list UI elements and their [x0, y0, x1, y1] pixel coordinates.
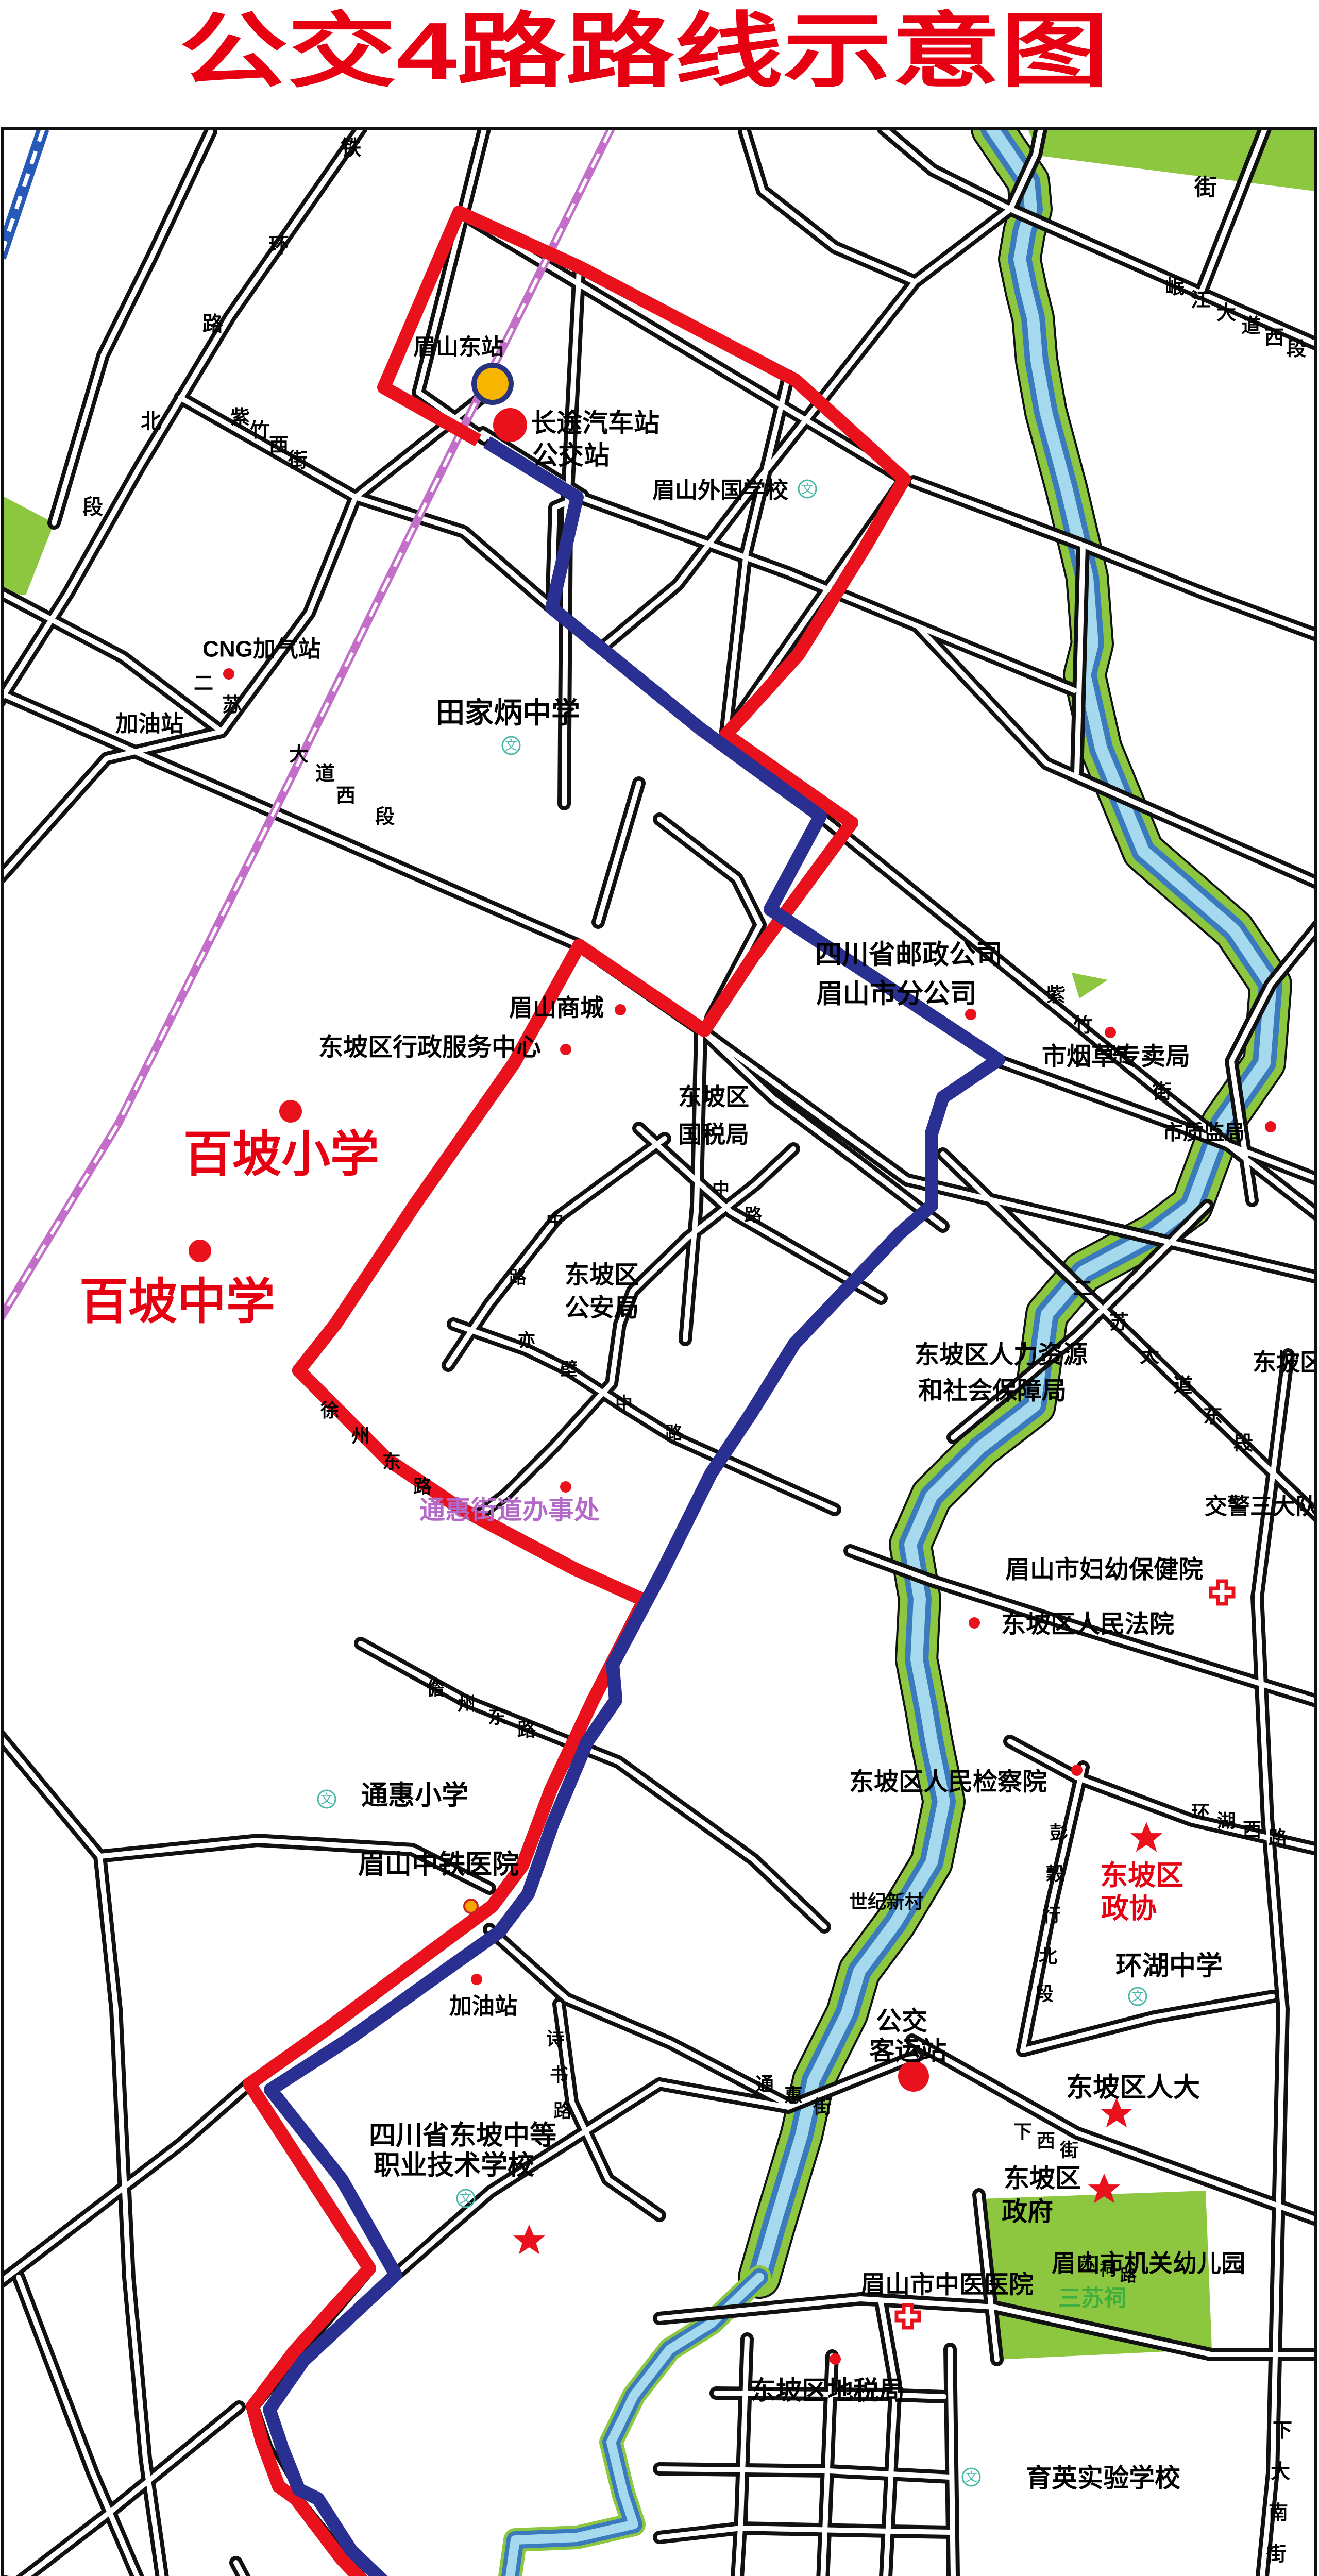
svg-text:东坡区: 东坡区 [1253, 1349, 1319, 1376]
svg-text:西: 西 [269, 435, 289, 456]
svg-text:段: 段 [1233, 1433, 1253, 1454]
svg-text:湖: 湖 [1217, 1810, 1236, 1832]
svg-text:眉山外国学校: 眉山外国学校 [652, 478, 788, 503]
svg-text:职业技术学校: 职业技术学校 [374, 2151, 534, 2181]
svg-text:路: 路 [517, 1719, 536, 1740]
svg-text:二: 二 [194, 673, 213, 694]
svg-text:南: 南 [1269, 2502, 1288, 2524]
svg-text:北: 北 [141, 411, 161, 433]
svg-text:段: 段 [1035, 1984, 1054, 2005]
svg-text:公交4路路线示意图: 公交4路路线示意图 [179, 6, 1109, 97]
svg-text:西: 西 [1264, 327, 1284, 349]
svg-text:西: 西 [1243, 1819, 1261, 1840]
svg-text:公交: 公交 [876, 2007, 927, 2036]
svg-text:街: 街 [1152, 1081, 1172, 1103]
svg-text:路: 路 [553, 2100, 572, 2122]
svg-text:下: 下 [1013, 2121, 1032, 2142]
svg-text:公交站: 公交站 [532, 441, 610, 470]
svg-text:铁: 铁 [341, 137, 361, 160]
svg-text:东坡区人力资源: 东坡区人力资源 [915, 1342, 1088, 1369]
svg-text:政府: 政府 [1002, 2197, 1053, 2226]
svg-text:街: 街 [1059, 2140, 1078, 2161]
svg-text:环湖中学: 环湖中学 [1115, 1952, 1223, 1981]
svg-text:东坡区人民检察院: 东坡区人民检察院 [849, 1769, 1047, 1796]
svg-text:路: 路 [665, 1423, 683, 1443]
svg-text:文: 文 [1131, 1990, 1144, 2004]
svg-text:通惠街道办事处: 通惠街道办事处 [419, 1496, 600, 1524]
svg-text:眉山市分公司: 眉山市分公司 [816, 979, 977, 1009]
svg-text:彭: 彭 [1050, 1822, 1068, 1843]
svg-text:江: 江 [1191, 290, 1210, 311]
svg-text:大: 大 [1271, 2461, 1290, 2483]
svg-text:中: 中 [712, 1180, 730, 1199]
svg-text:岷: 岷 [1165, 277, 1185, 298]
svg-text:路: 路 [509, 1268, 527, 1287]
svg-text:紫: 紫 [1046, 985, 1066, 1006]
svg-text:街: 街 [1194, 175, 1217, 200]
svg-text:通惠小学: 通惠小学 [361, 1781, 468, 1811]
svg-text:惠: 惠 [784, 2085, 803, 2106]
svg-text:道: 道 [1173, 1375, 1193, 1397]
svg-text:段: 段 [1287, 338, 1306, 360]
svg-text:公安局: 公安局 [565, 1295, 639, 1322]
svg-text:东坡区行政服务中心: 东坡区行政服务中心 [318, 1034, 541, 1061]
svg-text:段: 段 [375, 806, 395, 828]
svg-text:儋: 儋 [426, 1678, 445, 1699]
svg-text:道: 道 [1241, 315, 1261, 337]
svg-text:路: 路 [202, 313, 224, 336]
svg-text:文: 文 [801, 482, 814, 496]
svg-text:州: 州 [457, 1693, 476, 1715]
svg-text:四川省邮政公司: 四川省邮政公司 [815, 940, 1003, 970]
svg-text:三苏祠: 三苏祠 [1058, 2286, 1126, 2311]
svg-text:政协: 政协 [1101, 1893, 1157, 1924]
svg-text:苏: 苏 [222, 694, 242, 716]
svg-text:东坡区人大: 东坡区人大 [1066, 2073, 1200, 2103]
svg-text:文: 文 [460, 2192, 472, 2206]
svg-text:文: 文 [320, 1792, 333, 1806]
svg-text:苏: 苏 [1079, 2253, 1095, 2272]
svg-text:穀: 穀 [1046, 1863, 1064, 1885]
svg-text:书: 书 [550, 2064, 568, 2086]
svg-text:市质监局: 市质监局 [1162, 1122, 1245, 1144]
svg-text:文: 文 [505, 739, 517, 753]
svg-text:西: 西 [336, 785, 356, 807]
svg-text:竹: 竹 [1073, 1015, 1093, 1037]
svg-text:街: 街 [1266, 2544, 1286, 2565]
svg-text:道: 道 [315, 763, 335, 785]
svg-text:百坡中学: 百坡中学 [79, 1275, 275, 1329]
svg-text:二: 二 [1073, 1278, 1093, 1300]
svg-text:东坡区: 东坡区 [678, 1083, 749, 1110]
svg-text:段: 段 [82, 496, 103, 519]
svg-text:眉山市妇幼保健院: 眉山市妇幼保健院 [1005, 1556, 1203, 1584]
svg-text:眉山东站: 眉山东站 [413, 335, 504, 360]
svg-text:苏: 苏 [1109, 1312, 1129, 1333]
svg-text:大: 大 [1140, 1345, 1159, 1367]
svg-text:大: 大 [1216, 302, 1236, 324]
svg-text:路: 路 [1269, 1827, 1288, 1849]
svg-text:徐: 徐 [320, 1400, 339, 1421]
svg-text:大: 大 [289, 744, 309, 766]
svg-text:行: 行 [1042, 1905, 1061, 1926]
svg-text:亦: 亦 [518, 1331, 535, 1350]
svg-text:东坡区地税局: 东坡区地税局 [750, 2376, 905, 2405]
svg-text:东: 东 [488, 1706, 506, 1727]
svg-text:紫: 紫 [230, 407, 250, 429]
svg-text:CNG加气站: CNG加气站 [202, 637, 321, 662]
svg-text:路: 路 [413, 1476, 432, 1497]
svg-text:世纪新村: 世纪新村 [849, 1891, 923, 1912]
svg-text:国税局: 国税局 [678, 1121, 749, 1148]
svg-text:东坡区人民法院: 东坡区人民法院 [1001, 1611, 1174, 1638]
svg-text:加油站: 加油站 [449, 1994, 517, 2019]
svg-text:环: 环 [1191, 1802, 1210, 1823]
svg-text:东: 东 [1203, 1405, 1223, 1427]
svg-text:东: 东 [382, 1451, 401, 1472]
svg-text:中: 中 [615, 1394, 633, 1414]
svg-text:北: 北 [1039, 1946, 1057, 1967]
svg-text:育英实验学校: 育英实验学校 [1026, 2464, 1180, 2493]
svg-text:客运站: 客运站 [869, 2037, 946, 2065]
svg-text:东坡区: 东坡区 [1100, 1860, 1183, 1891]
svg-text:中: 中 [546, 1211, 564, 1231]
svg-text:壁: 壁 [560, 1360, 578, 1379]
svg-text:东: 东 [1110, 1045, 1129, 1067]
svg-text:加油站: 加油站 [115, 711, 183, 737]
svg-text:路: 路 [745, 1206, 763, 1225]
svg-text:诗: 诗 [546, 2028, 565, 2049]
svg-text:眉山商城: 眉山商城 [509, 994, 604, 1021]
svg-text:路: 路 [1120, 2266, 1137, 2284]
svg-text:交警三大队: 交警三大队 [1205, 1494, 1318, 1519]
svg-text:环: 环 [268, 234, 289, 257]
svg-text:田家炳中学: 田家炳中学 [436, 697, 580, 729]
svg-text:通: 通 [755, 2074, 774, 2095]
svg-text:文: 文 [965, 2470, 977, 2484]
svg-text:四川省东坡中等: 四川省东坡中等 [369, 2121, 556, 2151]
svg-text:百坡小学: 百坡小学 [183, 1127, 379, 1182]
svg-text:眉山市中医医院: 眉山市中医医院 [860, 2272, 1034, 2299]
svg-text:州: 州 [351, 1426, 370, 1447]
svg-text:长途汽车站: 长途汽车站 [531, 409, 659, 437]
svg-text:下: 下 [1273, 2420, 1292, 2442]
svg-text:眉山中铁医院: 眉山中铁医院 [358, 1850, 519, 1880]
svg-text:西: 西 [1037, 2130, 1055, 2151]
svg-text:街: 街 [288, 450, 308, 471]
svg-text:和社会保障局: 和社会保障局 [918, 1378, 1067, 1405]
svg-text:祠: 祠 [1100, 2260, 1116, 2278]
svg-text:东坡区: 东坡区 [565, 1262, 639, 1289]
svg-text:竹: 竹 [250, 420, 269, 442]
svg-text:街: 街 [813, 2096, 832, 2117]
svg-text:东坡区: 东坡区 [1004, 2164, 1081, 2193]
